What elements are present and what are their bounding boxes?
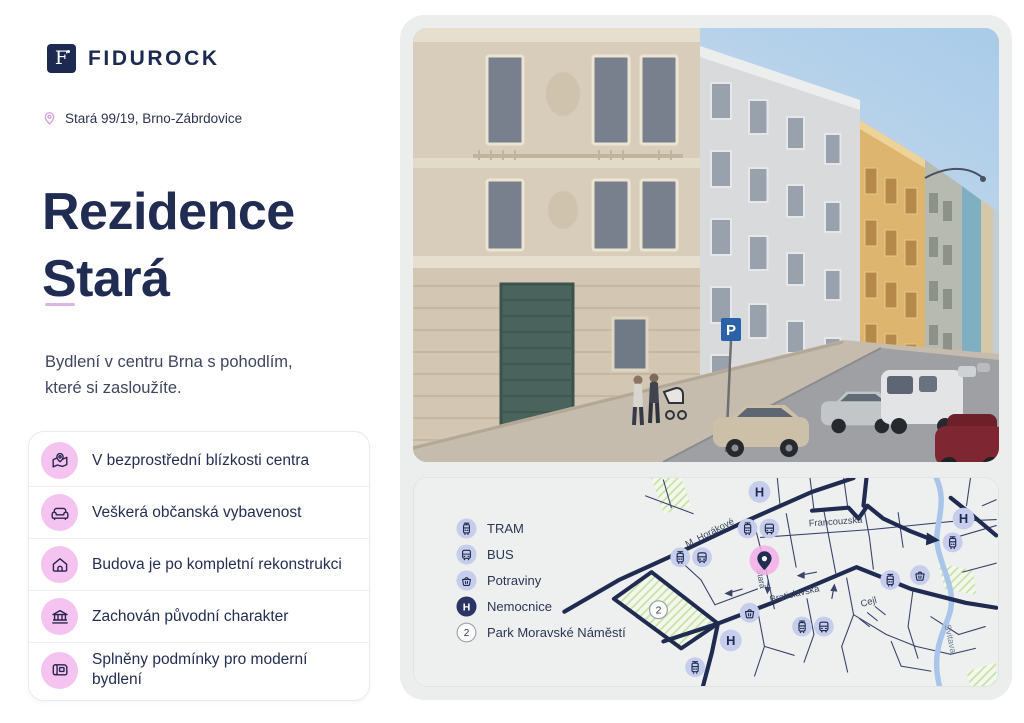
legend-item-potraviny: Potraviny bbox=[456, 570, 626, 591]
map-marker-tram bbox=[738, 519, 758, 539]
map-marker-grocery bbox=[740, 603, 760, 623]
map-marker-hospital: H bbox=[720, 630, 742, 652]
grocery-icon bbox=[456, 570, 477, 591]
sofa-icon bbox=[41, 494, 78, 531]
feature-row-charakter: Zachován původní charakter bbox=[29, 590, 369, 642]
tagline: Bydlení v centru Brna s pohodlím, které … bbox=[45, 349, 293, 401]
bus-icon bbox=[456, 544, 477, 565]
page-title: Rezidence Stará bbox=[42, 179, 295, 313]
building-photo: P bbox=[413, 28, 999, 462]
map-marker-hospital: H bbox=[749, 481, 771, 503]
title-divider bbox=[45, 303, 75, 306]
map-marker-pin bbox=[750, 545, 780, 575]
parking-sign-letter: P bbox=[726, 322, 736, 339]
svg-text:H: H bbox=[959, 511, 968, 526]
logo-square-icon: F bbox=[47, 44, 76, 73]
map-legend: TRAM BUS Potraviny H bbox=[456, 518, 626, 643]
logo-dot bbox=[67, 50, 70, 53]
feature-row-rekonstrukce: Budova je po kompletní rekonstrukci bbox=[29, 538, 369, 590]
feature-label: V bezprostřední blízkosti centra bbox=[92, 451, 309, 471]
bank-icon bbox=[41, 598, 78, 635]
map-pin-icon bbox=[41, 442, 78, 479]
feature-label: Zachován původní charakter bbox=[92, 607, 288, 627]
feature-list: V bezprostřední blízkosti centra Veškerá… bbox=[28, 431, 370, 701]
feature-label: Splněny podmínky pro moderní bydlení bbox=[92, 650, 357, 690]
map-marker-grocery bbox=[910, 565, 930, 585]
park-number-icon: 2 bbox=[456, 622, 477, 643]
map-marker-tram bbox=[670, 547, 690, 567]
map-marker-tram bbox=[880, 570, 900, 590]
map-marker-tram bbox=[943, 532, 963, 552]
area-map: M. Horákové Francouzská Stará Bratislavs… bbox=[413, 477, 999, 687]
brand-logo[interactable]: F FIDUROCK bbox=[47, 44, 220, 73]
svg-text:H: H bbox=[726, 633, 735, 648]
location-pin-icon bbox=[42, 111, 57, 126]
map-marker-hospital: H bbox=[953, 508, 975, 530]
legend-item-tram: TRAM bbox=[456, 518, 626, 539]
hospital-icon: H bbox=[456, 596, 477, 617]
map-marker-park: 2 bbox=[650, 601, 668, 619]
house-icon bbox=[41, 546, 78, 583]
legend-item-nemocnice: H Nemocnice bbox=[456, 596, 626, 617]
map-marker-bus bbox=[814, 617, 834, 637]
location-text: Stará 99/19, Brno-Zábrdovice bbox=[65, 111, 242, 126]
map-marker-tram bbox=[792, 617, 812, 637]
feature-row-vybavenost: Veškerá občanská vybavenost bbox=[29, 486, 369, 538]
legend-item-park: 2 Park Moravské Náměstí bbox=[456, 622, 626, 643]
legend-item-bus: BUS bbox=[456, 544, 626, 565]
svg-text:2: 2 bbox=[656, 605, 662, 616]
tram-icon bbox=[456, 518, 477, 539]
feature-row-moderni-bydleni: Splněny podmínky pro moderní bydlení bbox=[29, 642, 369, 697]
feature-row-centrum: V bezprostřední blízkosti centra bbox=[29, 435, 369, 486]
svg-text:H: H bbox=[755, 484, 764, 499]
building-photo-illustration: P bbox=[413, 28, 999, 462]
map-marker-tram bbox=[685, 657, 705, 677]
media-panel: P bbox=[400, 15, 1012, 700]
feature-label: Veškerá občanská vybavenost bbox=[92, 503, 301, 523]
svg-text:H: H bbox=[463, 601, 471, 613]
map-marker-bus bbox=[759, 519, 779, 539]
feature-label: Budova je po kompletní rekonstrukci bbox=[92, 555, 342, 575]
svg-text:2: 2 bbox=[464, 628, 470, 639]
brand-wordmark: FIDUROCK bbox=[88, 47, 220, 71]
blueprint-icon bbox=[41, 652, 78, 689]
location: Stará 99/19, Brno-Zábrdovice bbox=[42, 111, 242, 126]
map-marker-bus bbox=[692, 547, 712, 567]
